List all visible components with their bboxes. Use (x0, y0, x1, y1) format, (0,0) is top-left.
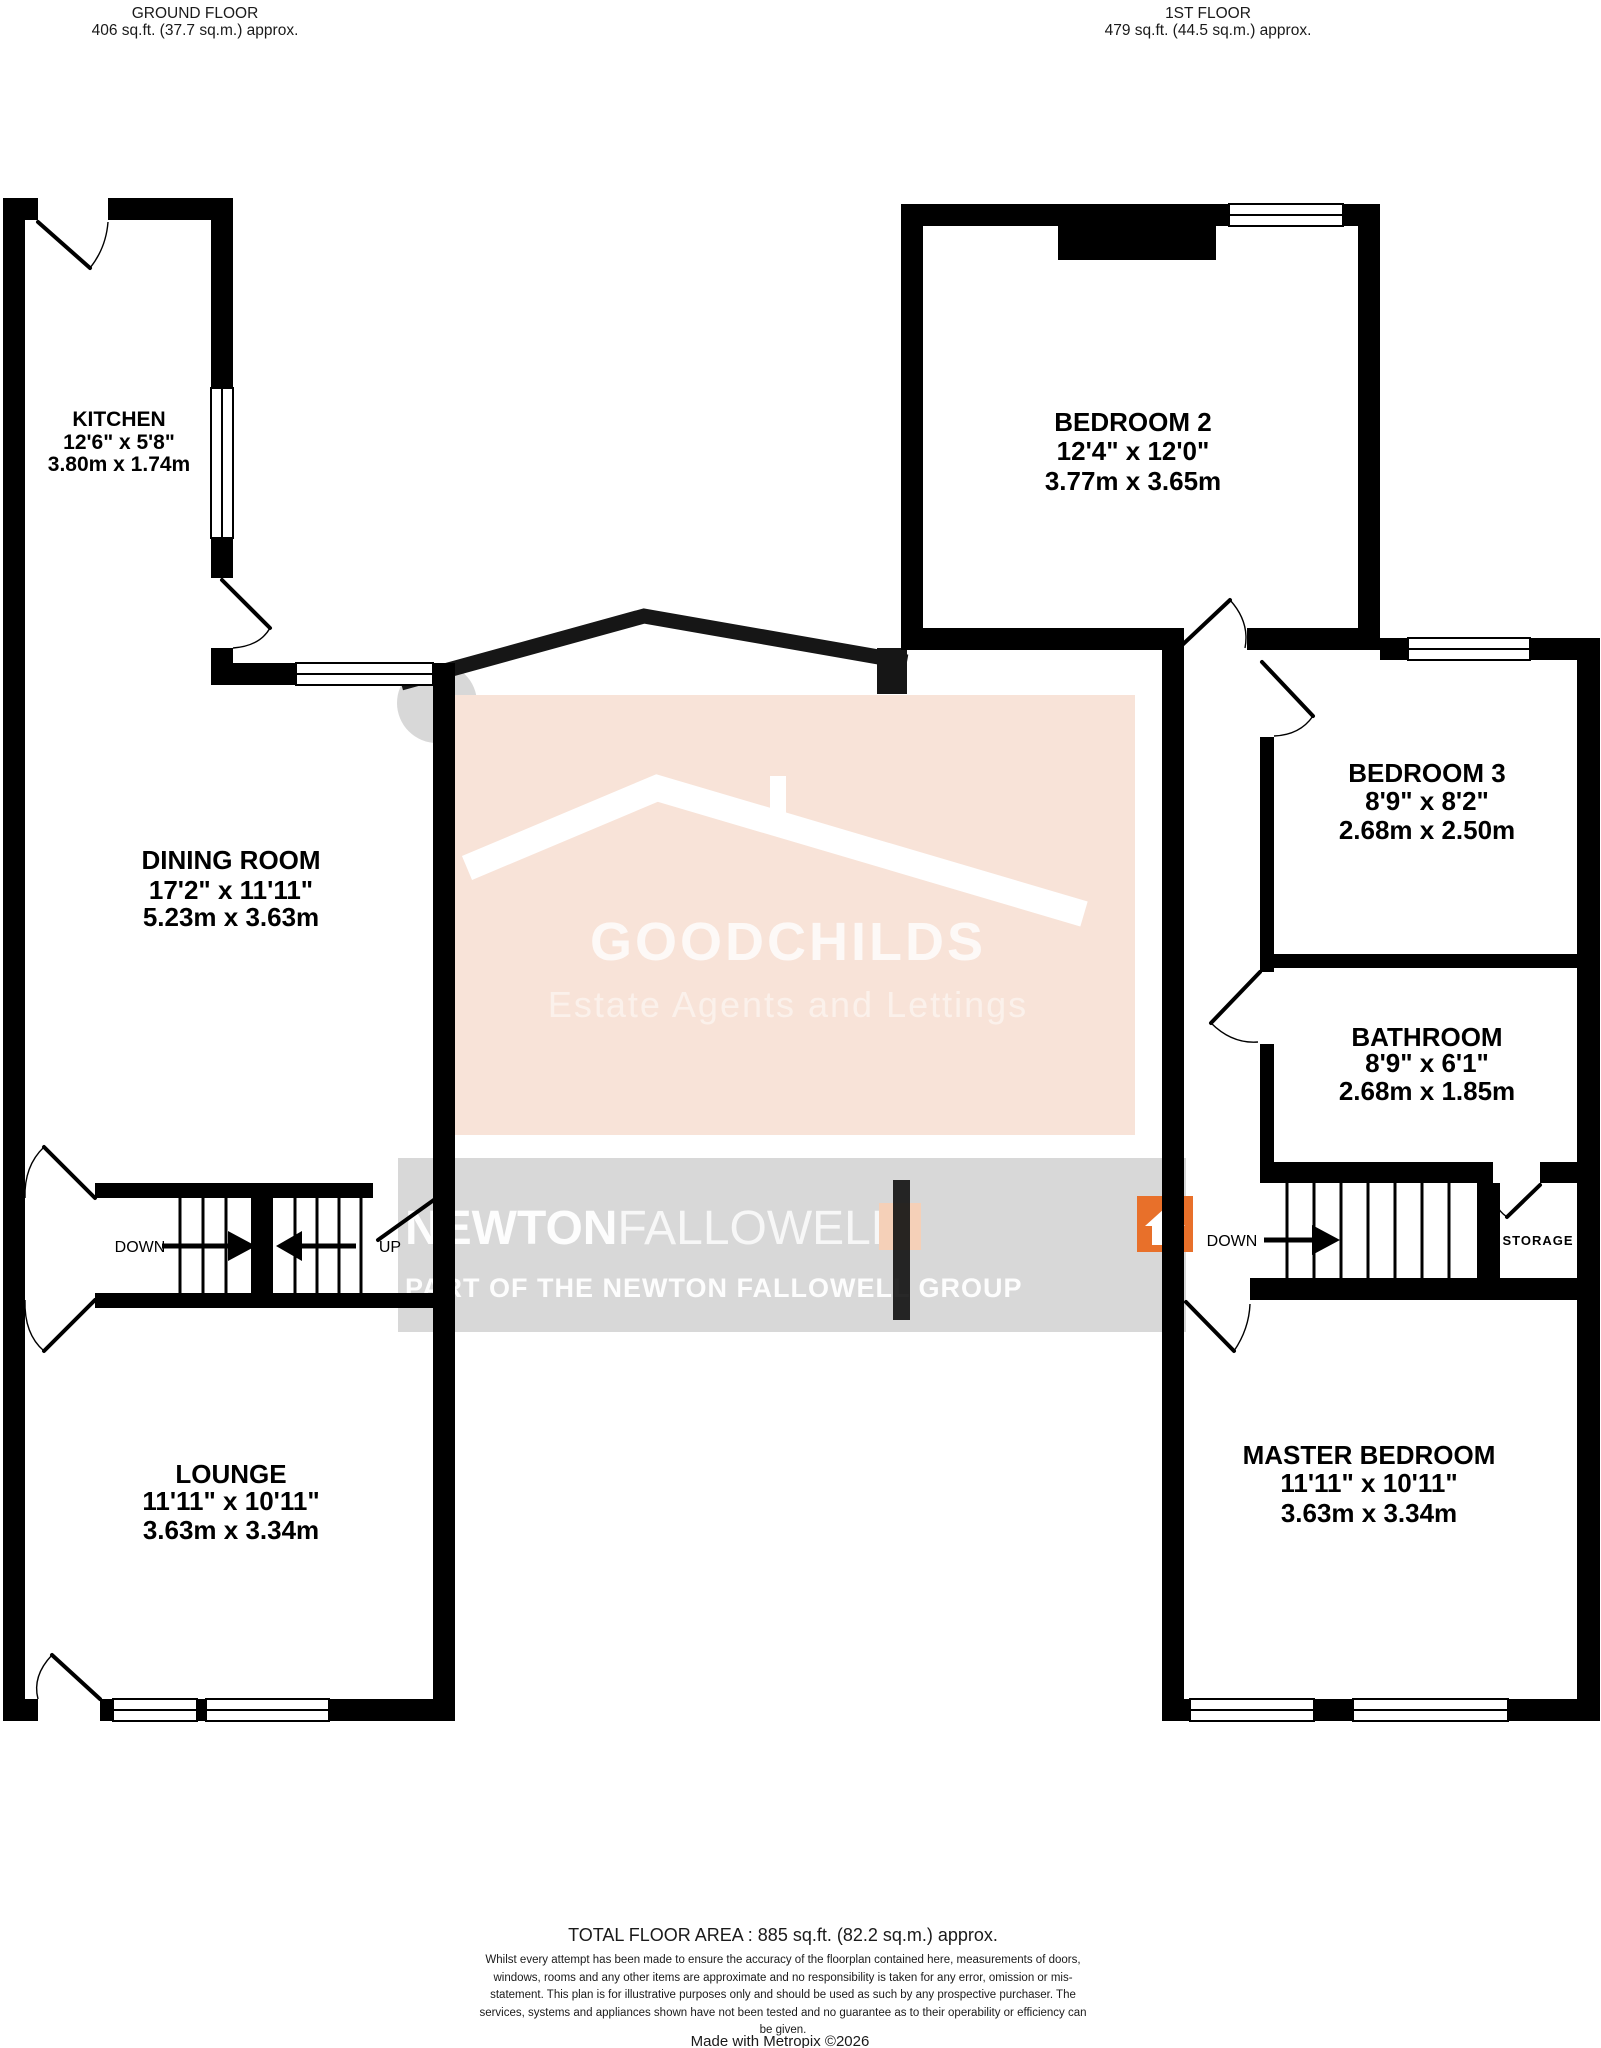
stairs-arrow-right-icon (1264, 1225, 1340, 1255)
window-lounge-1 (113, 1699, 197, 1721)
wall (901, 204, 923, 650)
bedroom2-metric: 3.77m x 3.65m (1045, 466, 1221, 496)
watermark-goodchilds: GOODCHILDS Estate Agents and Lettings (397, 616, 1135, 1135)
total-floor-area: TOTAL FLOOR AREA : 885 sq.ft. (82.2 sq.m… (568, 1925, 998, 1945)
ground-floor-area: 406 sq.ft. (37.7 sq.m.) approx. (92, 22, 299, 39)
ground-down-label: DOWN (115, 1239, 166, 1256)
window-master-2 (1353, 1699, 1508, 1721)
wall (1577, 638, 1600, 1721)
kitchen-imperial: 12'6" x 5'8" (63, 431, 175, 454)
wall (1162, 628, 1184, 1721)
door-kitchen-entry (38, 222, 108, 268)
watermark-brand2: NEWTONFALLOWELL (405, 1202, 898, 1255)
wall (197, 1699, 206, 1721)
room-storage (1500, 1183, 1577, 1278)
storage-label: STORAGE (1502, 1233, 1573, 1248)
watermark-newton-fallowell: NEWTONFALLOWELL PART OF THE NEWTON FALLO… (398, 1158, 1193, 1332)
floor-headers: GROUND FLOOR 406 sq.ft. (37.7 sq.m.) app… (92, 5, 1312, 39)
stairs-arrow-right-icon (162, 1231, 256, 1261)
door-bedroom3 (1262, 662, 1313, 736)
wall (108, 198, 233, 220)
small-house-chimney-icon (893, 1180, 910, 1320)
door-kitchen-dining (222, 580, 270, 648)
wall (1477, 1183, 1500, 1278)
first-floor-title: 1ST FLOOR (1165, 5, 1251, 22)
wall (95, 1183, 373, 1198)
dining-name: DINING ROOM (141, 845, 320, 875)
wall (211, 220, 233, 388)
wall (1358, 204, 1380, 650)
goodchilds-chimney-icon (770, 776, 786, 832)
wall (3, 1699, 38, 1721)
bedroom2-imperial: 12'4" x 12'0" (1057, 436, 1210, 466)
first-floor-area: 479 sq.ft. (44.5 sq.m.) approx. (1105, 22, 1312, 39)
window-bedroom2 (1229, 204, 1343, 226)
master-metric: 3.63m x 3.34m (1281, 1498, 1457, 1528)
wall (1314, 1699, 1353, 1721)
watermark-brand: GOODCHILDS (590, 912, 986, 972)
wall (1508, 1699, 1600, 1721)
lounge-metric: 3.63m x 3.34m (143, 1515, 319, 1545)
bathroom-imperial: 8'9" x 6'1" (1365, 1048, 1489, 1078)
wall (3, 198, 38, 220)
door-bathroom (1211, 972, 1260, 1042)
wall (1260, 1044, 1274, 1162)
first-floor-stairs (1264, 1183, 1449, 1278)
door-dining-hall (25, 1147, 95, 1198)
kitchen-metric: 3.80m x 1.74m (48, 453, 190, 476)
bedroom3-imperial: 8'9" x 8'2" (1365, 786, 1489, 816)
watermark-tagline: Estate Agents and Lettings (548, 984, 1028, 1025)
wall (1260, 954, 1577, 968)
wall (1260, 737, 1274, 972)
wall (1162, 1699, 1190, 1721)
window-lounge-2 (206, 1699, 329, 1721)
floorplan: GOODCHILDS Estate Agents and Lettings NE… (0, 0, 1601, 2048)
door-bedroom2 (1179, 600, 1246, 648)
wall (329, 1699, 455, 1721)
goodchilds-dark-roof-icon (401, 616, 907, 683)
bedroom3-metric: 2.68m x 2.50m (1339, 815, 1515, 845)
floorplan-page: GOODCHILDS Estate Agents and Lettings NE… (0, 0, 1601, 2048)
kitchen-name: KITCHEN (72, 408, 165, 431)
goodchilds-dark-chimney-icon (877, 648, 907, 694)
lounge-imperial: 11'11" x 10'11" (142, 1486, 319, 1516)
ground-floor-title: GROUND FLOOR (132, 5, 259, 22)
master-name: MASTER BEDROOM (1243, 1440, 1496, 1470)
wall (1260, 1162, 1493, 1183)
wall (901, 204, 1229, 226)
first-down-label: DOWN (1207, 1233, 1258, 1250)
wall (100, 1699, 113, 1721)
window-master-1 (1190, 1699, 1314, 1721)
wall (433, 663, 455, 1721)
chimney-breast (1058, 226, 1216, 260)
watermark-brand2-sub: PART OF THE NEWTON FALLOWELL GROUP (405, 1273, 1022, 1303)
bedroom2-name: BEDROOM 2 (1054, 407, 1211, 437)
dining-imperial: 17'2" x 11'11" (149, 875, 313, 905)
window-kitchen (211, 388, 233, 538)
wall (211, 538, 233, 578)
door-storage (1494, 1185, 1540, 1217)
bathroom-metric: 2.68m x 1.85m (1339, 1076, 1515, 1106)
disclaimer-text: Whilst every attempt has been made to en… (473, 1952, 1093, 2040)
lounge-name: LOUNGE (175, 1459, 286, 1489)
room-dining (25, 685, 433, 1183)
wall (233, 663, 296, 685)
door-master-bedroom (1186, 1302, 1250, 1351)
door-front-entrance (37, 1655, 100, 1699)
wall (901, 628, 1177, 650)
wall (95, 1293, 433, 1308)
ground-up-label: UP (379, 1239, 401, 1256)
wall (1250, 1278, 1577, 1300)
wall (3, 198, 25, 1721)
door-hall-lounge (25, 1300, 95, 1351)
wall (211, 648, 233, 685)
wall (1540, 1162, 1577, 1183)
wall (1380, 638, 1408, 660)
dining-metric: 5.23m x 3.63m (143, 902, 319, 932)
window-bedroom3 (1408, 638, 1530, 660)
bedroom3-name: BEDROOM 3 (1348, 758, 1505, 788)
window-dining (296, 663, 433, 685)
wall (1247, 628, 1380, 650)
master-imperial: 11'11" x 10'11" (1280, 1468, 1457, 1498)
